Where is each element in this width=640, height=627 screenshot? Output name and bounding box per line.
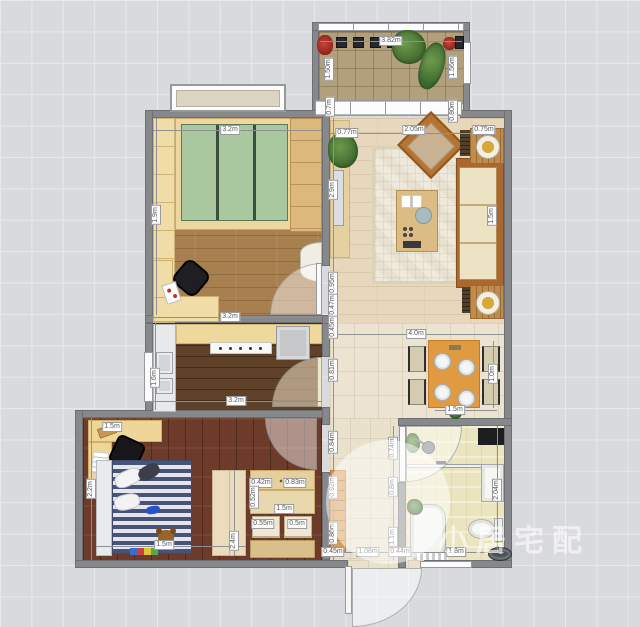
- kitchen-door-leaf[interactable]: [317, 357, 322, 407]
- bear-ear: [156, 528, 162, 534]
- bathroom-window: [420, 561, 472, 568]
- plate-icon: [434, 384, 451, 401]
- dim-label: 0.81m: [328, 358, 338, 381]
- dim-label: 0.75m: [472, 125, 495, 135]
- decor-plate: [415, 207, 432, 224]
- burner-knob: [259, 347, 262, 350]
- bear-ear: [170, 528, 176, 534]
- dim-label: 0.45m: [321, 547, 344, 557]
- wall-bedroom-top: [75, 410, 330, 418]
- dining-table-icon[interactable]: [428, 340, 480, 408]
- plate-icon: [458, 359, 475, 376]
- dim-label: 1.5m: [154, 540, 174, 550]
- stove-icon[interactable]: [210, 342, 272, 354]
- dim-label: 1.0m: [488, 364, 498, 384]
- plate-icon: [434, 353, 451, 370]
- burner-knob: [229, 347, 232, 350]
- flower-pot-icon[interactable]: [317, 35, 333, 55]
- dining-chair-icon[interactable]: [408, 346, 426, 372]
- dim-label: 3.2m: [226, 396, 246, 406]
- dim-label: 3.82m: [379, 36, 402, 46]
- study-corner-cabinet[interactable]: [290, 118, 322, 232]
- desk-icon[interactable]: [153, 296, 219, 322]
- dim-label: 1.5m: [102, 422, 122, 432]
- wall-bedroom-left: [75, 410, 83, 568]
- entry-door-swing-icon[interactable]: [352, 568, 422, 627]
- dim-label: 0.77m: [335, 128, 358, 138]
- planter-box-icon[interactable]: [336, 37, 347, 48]
- dim-label: 1.5m: [274, 504, 294, 514]
- dim-label: 0.47m: [328, 293, 338, 316]
- dining-chair-icon[interactable]: [408, 379, 426, 405]
- wardrobe-sliding-doors[interactable]: [181, 124, 288, 221]
- balcony-top-window: [318, 23, 464, 31]
- coffee-table-icon[interactable]: [396, 190, 438, 252]
- magazine: [412, 195, 422, 208]
- balcony-sliding-door[interactable]: [315, 100, 462, 116]
- burner-knob: [249, 347, 252, 350]
- balcony-right-window: [463, 42, 471, 84]
- fruit-bowl: [476, 135, 500, 159]
- paper-mark: [173, 294, 178, 299]
- wall-central-mid: [322, 407, 330, 425]
- dim-label: 0.95m: [328, 271, 338, 294]
- bath-mat-icon: [478, 428, 504, 445]
- burner-knob: [239, 347, 242, 350]
- dim-label: 0.84m: [328, 430, 338, 453]
- dim-label: 0.5m: [287, 519, 307, 529]
- teacup: [409, 227, 413, 231]
- dim-label: 1.9m: [151, 205, 161, 225]
- dim-label: 4.0m: [406, 329, 426, 339]
- fridge-icon[interactable]: [276, 326, 310, 360]
- watermark-text: 小居宅配: [438, 516, 590, 560]
- teacup: [403, 233, 407, 237]
- planter-box-icon[interactable]: [353, 37, 364, 48]
- dim-label: 1.50m: [324, 57, 334, 80]
- dim-label: 1.5m: [445, 405, 465, 415]
- burner-knob: [219, 347, 222, 350]
- dim-label: 0.52m: [249, 485, 259, 508]
- dim-label: 2.2m: [86, 479, 96, 499]
- dim-label: 2.9m: [328, 180, 338, 200]
- dim-label: 0.55m: [251, 519, 274, 529]
- dim-label: 3.2m: [220, 312, 240, 322]
- wall-bathroom-top: [398, 418, 512, 426]
- storage-shelf[interactable]: [250, 540, 315, 558]
- dim-label: 2.05m: [402, 125, 425, 135]
- paper-mark: [167, 288, 172, 293]
- dim-label: 3.2m: [220, 125, 240, 135]
- bay-window-sill: [176, 90, 280, 107]
- dim-label: 2.4m: [229, 531, 239, 551]
- wall-bottom-left: [75, 560, 348, 568]
- bed-frame[interactable]: [96, 460, 112, 556]
- dim-label: 0.7m: [325, 97, 335, 117]
- dim-label: 1.6m: [150, 368, 160, 388]
- dim-label: 1.56m: [448, 55, 458, 78]
- dim-label: 0.80m: [448, 99, 458, 122]
- teacup: [409, 233, 413, 237]
- table-runner: [449, 345, 461, 350]
- dim-label: 1.5m: [487, 206, 497, 226]
- tray: [403, 241, 421, 248]
- wall-right: [504, 110, 512, 568]
- dim-label: 0.45m: [328, 315, 338, 338]
- dim-label: 2.04m: [492, 478, 502, 501]
- teacup: [403, 227, 407, 231]
- floor-plan-canvas: 3.82m1.50m1.56m0.7m0.80m3.2m3.2m1.9m0.77…: [0, 0, 640, 627]
- dim-line: [155, 323, 156, 410]
- planter-box-icon[interactable]: [455, 36, 464, 49]
- dim-label: 0.83m: [283, 478, 306, 488]
- watermark-logo-circle: [326, 440, 450, 564]
- magazine: [401, 195, 411, 208]
- side-table-bowl-icon[interactable]: [470, 285, 504, 319]
- study-door-leaf[interactable]: [316, 263, 322, 315]
- entry-door-icon[interactable]: [345, 566, 352, 614]
- fruit-bowl: [476, 291, 500, 315]
